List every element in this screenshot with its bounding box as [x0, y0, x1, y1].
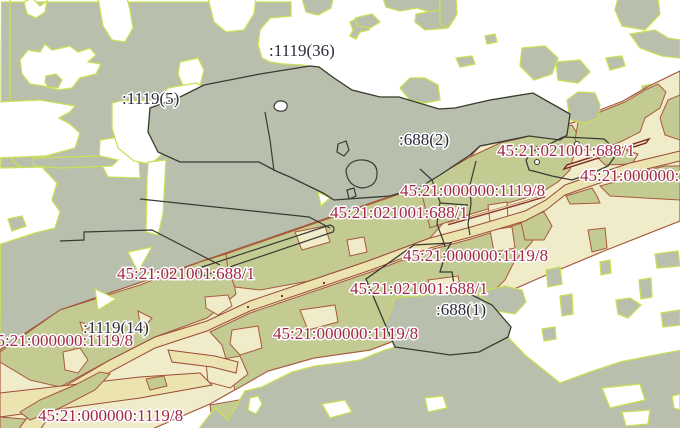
svg-text:45:21:000000:1119/8: 45:21:000000:1119/8 [273, 324, 418, 343]
svg-text::1119(5): :1119(5) [122, 89, 179, 108]
svg-text:45:21:000000:1119/8: 45:21:000000:1119/8 [403, 246, 548, 265]
svg-text:45:21:000000:1119/8: 45:21:000000:1119/8 [400, 181, 545, 200]
svg-text:45:21:021001:688/1: 45:21:021001:688/1 [330, 203, 468, 222]
svg-text:45:21:021001:688/1: 45:21:021001:688/1 [497, 141, 635, 160]
svg-text:45:21:000000:1119/8: 45:21:000000:1119/8 [0, 331, 133, 350]
svg-text:45:21:021001:688/1: 45:21:021001:688/1 [117, 264, 255, 283]
svg-text::1119(36): :1119(36) [269, 41, 335, 60]
svg-text::688(2): :688(2) [399, 130, 449, 149]
svg-text:45:21:021001:688/1: 45:21:021001:688/1 [350, 279, 488, 298]
svg-text::688(1): :688(1) [436, 300, 486, 319]
svg-text:45:21:000000:1119/8: 45:21:000000:1119/8 [38, 406, 183, 425]
svg-text:45:21:000000:1119/8: 45:21:000000:1119/8 [580, 166, 680, 185]
